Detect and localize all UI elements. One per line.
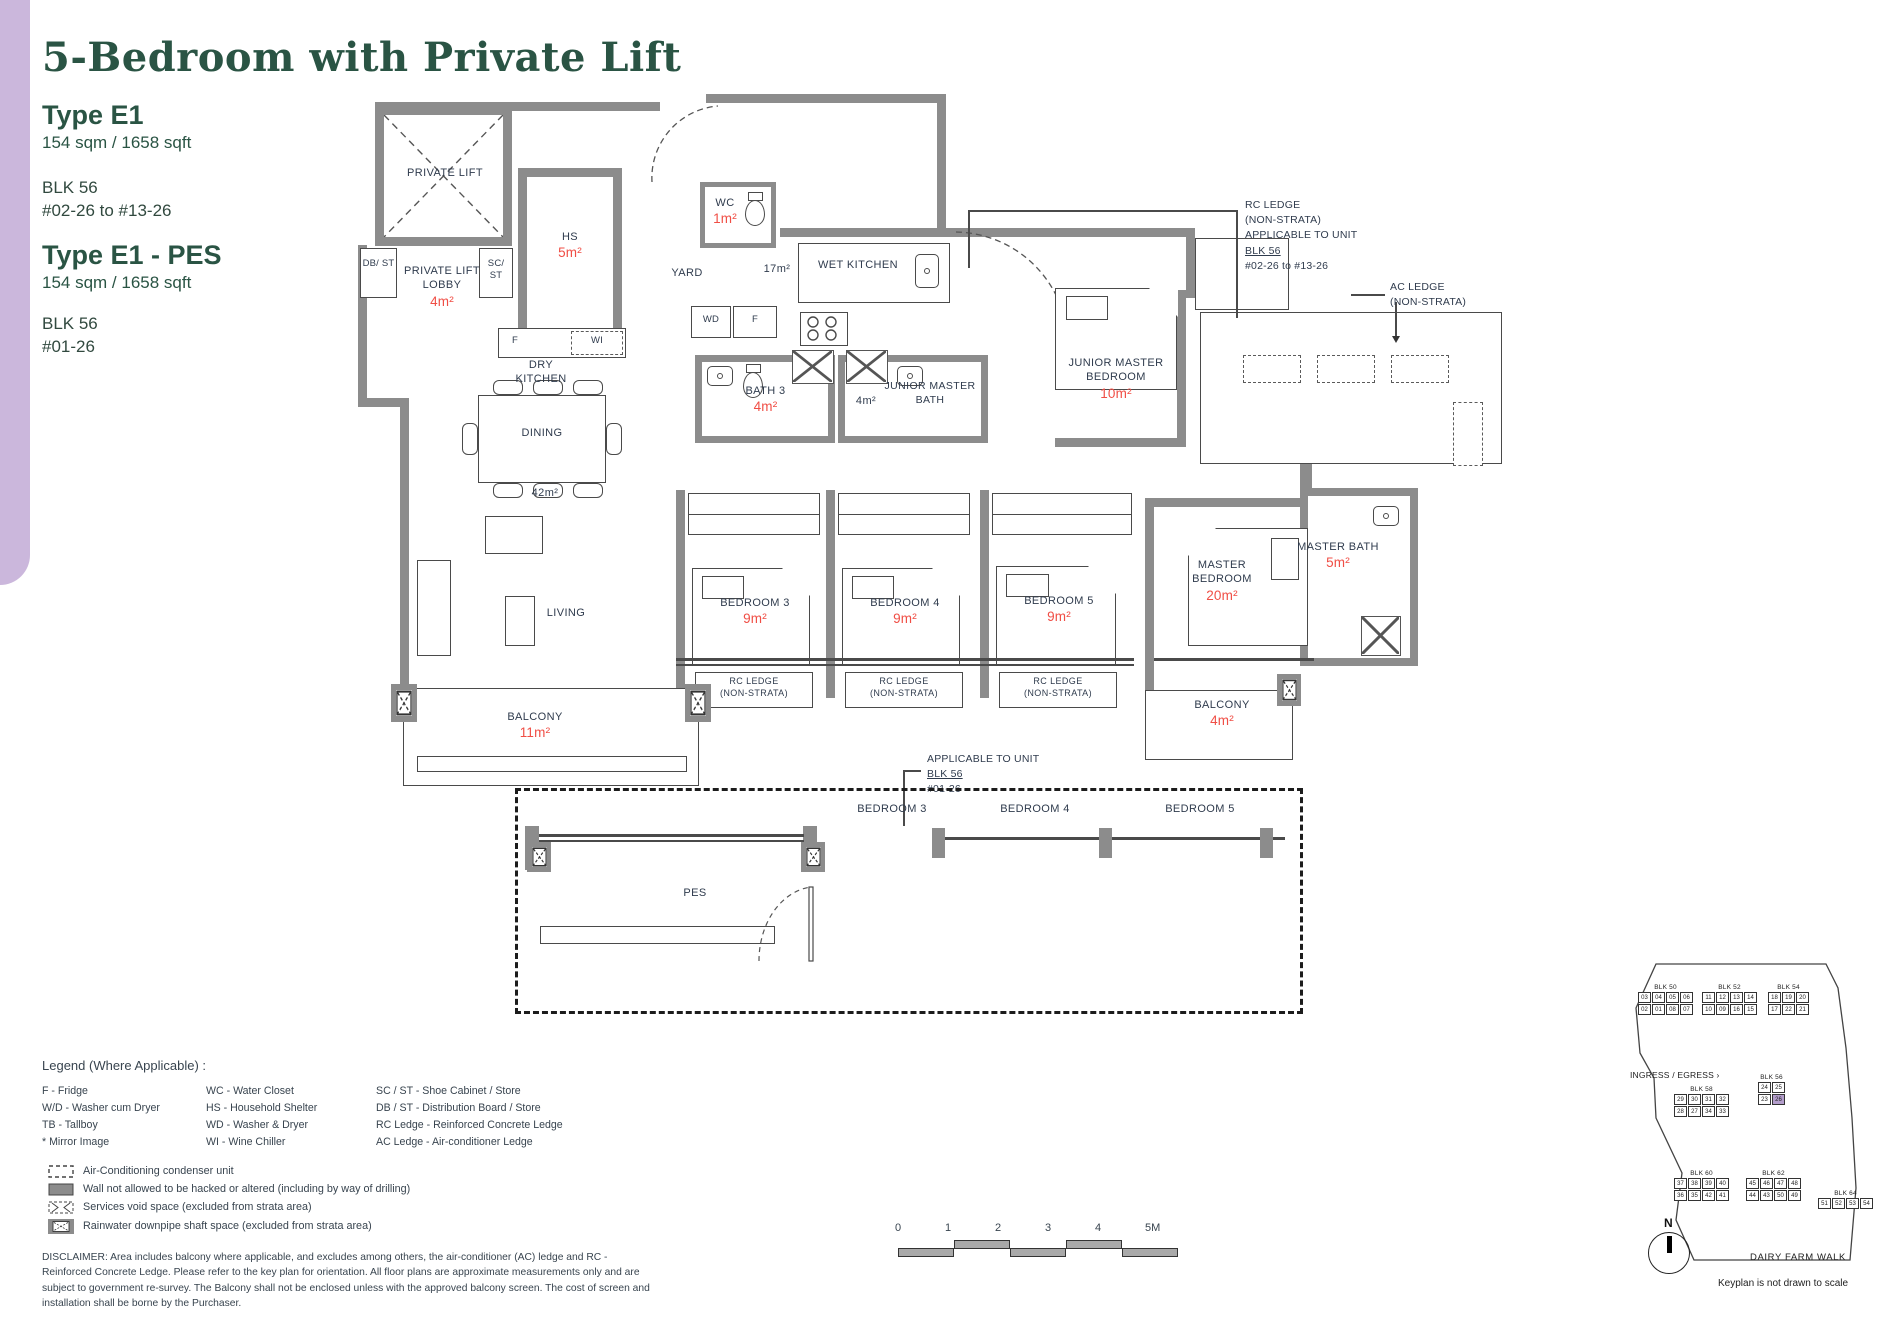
- services-void-icon: [846, 350, 888, 384]
- sink-icon: [915, 254, 939, 288]
- legend-sym-rainwater: Rainwater downpipe shaft space (excluded…: [48, 1219, 702, 1234]
- ac-condenser-icon: [1453, 402, 1483, 466]
- wc-label: WC1m²: [685, 196, 765, 228]
- keyplan-unit: 39: [1702, 1178, 1715, 1189]
- wall-segment: [400, 398, 409, 700]
- keyplan-unit: 47: [1774, 1178, 1787, 1189]
- legend-col2: WC - Water ClosetHS - Household ShelterW…: [206, 1083, 362, 1151]
- keyplan-block-blk62: BLK 62 45464748 44435049: [1746, 1170, 1801, 1202]
- keyplan-unit: 40: [1716, 1178, 1729, 1189]
- wall-segment: [1055, 438, 1186, 447]
- dining-area-label: 42m²: [517, 486, 573, 500]
- ac-condenser-icon: [1317, 355, 1375, 383]
- keyplan-unit: 22: [1782, 1004, 1795, 1015]
- keyplan-unit: 41: [1716, 1190, 1729, 1201]
- leader-line: [1236, 210, 1238, 318]
- keyplan-unit: 35: [1688, 1190, 1701, 1201]
- keyplan-unit: 49: [1788, 1190, 1801, 1201]
- fridge2-label: F: [733, 314, 777, 326]
- window-line: [539, 834, 804, 837]
- jm-bedroom-label: JUNIOR MASTER BEDROOM10m²: [1061, 356, 1171, 402]
- ac-condenser-icon: [1243, 355, 1301, 383]
- keyplan-block-blk58: BLK 58 29303132 28273433: [1674, 1086, 1729, 1118]
- db-st-label: DB/ ST: [362, 258, 395, 270]
- scale-segment: [898, 1248, 954, 1257]
- leader-line: [968, 210, 1238, 212]
- legend-sym-wall: Wall not allowed to be hacked or altered…: [48, 1183, 702, 1196]
- keyplan-block-blk52: BLK 52 11121314 10091615: [1702, 984, 1757, 1016]
- rc-ledge-label: RC LEDGE(NON-STRATA): [999, 676, 1117, 699]
- wardrobe: [838, 493, 970, 535]
- keyplan-unit: 26: [1772, 1094, 1785, 1105]
- dining-label: DINING: [478, 426, 606, 440]
- pes-planter: [540, 926, 775, 944]
- scale-ticks: 012345M: [895, 1222, 1195, 1234]
- sink-icon: [1373, 506, 1399, 526]
- rainwater-downpipe-icon: [391, 684, 417, 722]
- rc-ledge-label: RC LEDGE(NON-STRATA): [695, 676, 813, 699]
- wine-chiller-label: WI: [577, 335, 617, 347]
- sofa: [417, 560, 451, 656]
- wardrobe: [992, 493, 1132, 535]
- hs-label: HS5m²: [518, 230, 622, 262]
- private-lift-label: PRIVATE LIFT: [395, 166, 495, 180]
- bedroom4-label: BEDROOM 49m²: [839, 596, 971, 628]
- balcony-label: BALCONY11m²: [455, 710, 615, 742]
- wet-kitchen-label: WET KITCHEN: [815, 258, 901, 272]
- leader-line: [1351, 294, 1385, 296]
- balcony2-label: BALCONY4m²: [1157, 698, 1287, 730]
- keyplan-unit: 06: [1680, 992, 1693, 1003]
- pes-bedroom4-label: BEDROOM 4: [975, 802, 1095, 816]
- keyplan-unit: 46: [1760, 1178, 1773, 1189]
- type2-units: #01-26: [42, 337, 95, 357]
- keyplan-unit: 04: [1652, 992, 1665, 1003]
- keyplan-block-blk56: BLK 56 2425 2326: [1758, 1074, 1785, 1106]
- keyplan-block-blk60: BLK 60 37383940 36354241: [1674, 1170, 1729, 1202]
- type2-blk: BLK 56: [42, 314, 98, 334]
- scale-segment: [954, 1240, 1010, 1249]
- db-st-box: [360, 248, 397, 298]
- dry-kitchen-label: DRY KITCHEN: [503, 358, 579, 387]
- keyplan-unit: 21: [1796, 1004, 1809, 1015]
- wall-segment: [1260, 828, 1273, 858]
- bedroom5-label: BEDROOM 59m²: [993, 594, 1125, 626]
- keyplan-block-blk50: BLK 50 03040506 02010807: [1638, 984, 1693, 1016]
- yard-area-label: 17m²: [745, 262, 809, 276]
- keyplan: BLK 50 03040506 02010807 BLK 52 11121314…: [1628, 958, 1888, 1318]
- keyplan-unit: 53: [1846, 1198, 1859, 1209]
- keyplan-unit: 37: [1674, 1178, 1687, 1189]
- wardrobe: [688, 493, 820, 535]
- scale-segment: [1010, 1248, 1066, 1257]
- keyplan-unit: 16: [1730, 1004, 1743, 1015]
- rc-ledge-note: RC LEDGE(NON-STRATA) APPLICABLE TO UNITB…: [1245, 198, 1405, 274]
- keyplan-unit: 10: [1702, 1004, 1715, 1015]
- rc-ledge-label: RC LEDGE(NON-STRATA): [845, 676, 963, 699]
- keyplan-unit: 18: [1768, 992, 1781, 1003]
- legend-sym-ac: Air-Conditioning condenser unit: [48, 1165, 702, 1178]
- floorplan-page: 5-Bedroom with Private Lift Type E1 154 …: [0, 0, 1888, 1320]
- keyplan-unit: 12: [1716, 992, 1729, 1003]
- keyplan-unit: 23: [1758, 1094, 1771, 1105]
- pes-bedroom5-label: BEDROOM 5: [1140, 802, 1260, 816]
- keyplan-unit: 28: [1674, 1106, 1687, 1117]
- window-line: [676, 658, 1134, 661]
- coffee-table: [505, 596, 535, 646]
- scale-bar: 012345M: [895, 1222, 1195, 1268]
- wall-segment: [932, 828, 945, 858]
- keyplan-ingress-label: INGRESS / EGRESS ›: [1630, 1070, 1720, 1081]
- keyplan-unit: 13: [1730, 992, 1743, 1003]
- ac-condenser-icon: [1391, 355, 1449, 383]
- window-line: [676, 664, 1134, 666]
- pes-door-arc-icon: [755, 883, 817, 965]
- keyplan-block-blk54: BLK 54 181920 172221: [1768, 984, 1809, 1016]
- wall-segment: [676, 490, 685, 698]
- keyplan-unit: 20: [1796, 992, 1809, 1003]
- entry-door-arc-icon: [648, 100, 722, 186]
- chair-icon: [606, 423, 622, 455]
- chair-icon: [573, 483, 603, 498]
- keyplan-unit: 01: [1652, 1004, 1665, 1015]
- ac-ledge-note: AC LEDGE(NON-STRATA): [1390, 280, 1500, 310]
- keyplan-unit: 08: [1666, 1004, 1679, 1015]
- wall-segment: [980, 490, 989, 698]
- window-line: [539, 840, 804, 842]
- balcony-planter: [417, 756, 687, 772]
- keyplan-unit: 33: [1716, 1106, 1729, 1117]
- type1-blk: BLK 56: [42, 178, 98, 198]
- keyplan-unit: 27: [1688, 1106, 1701, 1117]
- north-needle-icon: [1667, 1236, 1672, 1253]
- jm-bath-label: JUNIOR MASTER BATH: [880, 380, 980, 407]
- master-bath-label: MASTER BATH5m²: [1290, 540, 1386, 572]
- lavender-side-bar: [0, 0, 30, 585]
- keyplan-unit: 09: [1716, 1004, 1729, 1015]
- rainwater-downpipe-icon: [685, 684, 711, 722]
- window-line: [1154, 658, 1314, 661]
- keyplan-unit: 07: [1680, 1004, 1693, 1015]
- keyplan-unit: 44: [1746, 1190, 1759, 1201]
- floor-plan: RC LEDGE(NON-STRATA) RC LEDGE(NON-STRATA…: [355, 88, 1550, 1033]
- keyplan-unit: 48: [1788, 1178, 1801, 1189]
- keyplan-unit: 14: [1744, 992, 1757, 1003]
- legend-sym-void: Services void space (excluded from strat…: [48, 1201, 702, 1214]
- keyplan-unit: 54: [1860, 1198, 1873, 1209]
- keyplan-road-label: DAIRY FARM WALK: [1718, 1252, 1878, 1263]
- keyplan-unit: 17: [1768, 1004, 1781, 1015]
- hob-icon: [800, 312, 848, 346]
- type1-name: Type E1: [42, 100, 144, 131]
- wall-segment: [1177, 290, 1186, 447]
- keyplan-unit: 42: [1702, 1190, 1715, 1201]
- rainwater-downpipe-icon: [801, 842, 825, 872]
- sink-icon: [707, 366, 733, 386]
- fridge-label: F: [503, 335, 527, 347]
- living-label: LIVING: [523, 606, 609, 620]
- keyplan-unit: 29: [1674, 1094, 1687, 1105]
- keyplan-unit: 51: [1818, 1198, 1831, 1209]
- leader-line: [968, 210, 970, 268]
- wd-label: WD: [691, 314, 731, 326]
- lobby-label: PRIVATE LIFT LOBBY4m²: [403, 264, 481, 310]
- rainwater-downpipe-icon: [527, 842, 551, 872]
- keyplan-unit: 11: [1702, 992, 1715, 1003]
- keyplan-unit: 38: [1688, 1178, 1701, 1189]
- keyplan-unit: 36: [1674, 1190, 1687, 1201]
- services-void-icon: [792, 350, 834, 384]
- bath3-label: BATH 34m²: [703, 384, 828, 416]
- wall-segment: [1145, 498, 1313, 507]
- arrow-icon: [1392, 336, 1400, 343]
- keyplan-block-blk64: BLK 64 51525354: [1818, 1190, 1873, 1210]
- wall-segment: [937, 94, 946, 237]
- scale-segment: [1066, 1240, 1122, 1249]
- legend: Legend (Where Applicable) : F - FridgeW/…: [42, 1058, 702, 1312]
- wall-segment: [1099, 828, 1112, 858]
- keyplan-unit: 52: [1832, 1198, 1845, 1209]
- wall-segment: [1186, 228, 1195, 298]
- keyplan-unit: 03: [1638, 992, 1651, 1003]
- pes-boundary: [515, 788, 1303, 1014]
- wall-segment: [1145, 498, 1154, 698]
- wall-segment: [826, 490, 835, 698]
- disclaimer: DISCLAIMER: Area includes balcony where …: [42, 1250, 657, 1312]
- type1-area: 154 sqm / 1658 sqft: [42, 133, 191, 153]
- window-line: [940, 837, 1285, 840]
- type2-name: Type E1 - PES: [42, 240, 222, 271]
- keyplan-unit: 30: [1688, 1094, 1701, 1105]
- sc-st-label: SC/ ST: [481, 258, 511, 283]
- pes-label: PES: [655, 886, 735, 900]
- keyplan-unit: 50: [1774, 1190, 1787, 1201]
- keyplan-unit: 32: [1716, 1094, 1729, 1105]
- scale-segment: [1122, 1248, 1178, 1257]
- chair-icon: [462, 423, 478, 455]
- legend-col1: F - FridgeW/D - Washer cum DryerTB - Tal…: [42, 1083, 192, 1151]
- keyplan-unit: 02: [1638, 1004, 1651, 1015]
- wall-legend-icon: [48, 1183, 74, 1196]
- keyplan-unit: 15: [1744, 1004, 1757, 1015]
- services-void-legend-icon: [48, 1201, 74, 1214]
- keyplan-note: Keyplan is not drawn to scale: [1718, 1278, 1888, 1289]
- type1-units: #02-26 to #13-26: [42, 201, 172, 221]
- legend-col3: SC / ST - Shoe Cabinet / StoreDB / ST - …: [376, 1083, 616, 1151]
- tv-console: [485, 516, 543, 554]
- shower-icon: [1361, 616, 1401, 656]
- keyplan-unit: 05: [1666, 992, 1679, 1003]
- pes-bedroom3-label: BEDROOM 3: [832, 802, 952, 816]
- type2-area: 154 sqm / 1658 sqft: [42, 273, 191, 293]
- rainwater-legend-icon: [48, 1219, 74, 1234]
- keyplan-unit: 24: [1758, 1082, 1771, 1093]
- keyplan-unit: 43: [1760, 1190, 1773, 1201]
- keyplan-unit: 45: [1746, 1178, 1759, 1189]
- legend-title: Legend (Where Applicable) :: [42, 1058, 702, 1073]
- keyplan-unit: 34: [1702, 1106, 1715, 1117]
- north-label: N: [1664, 1216, 1673, 1230]
- yard-label: YARD: [655, 266, 719, 280]
- keyplan-unit: 25: [1772, 1082, 1785, 1093]
- page-title: 5-Bedroom with Private Lift: [42, 34, 681, 81]
- ac-condenser-legend-icon: [48, 1165, 74, 1178]
- leader-line: [903, 770, 921, 772]
- keyplan-unit: 19: [1782, 992, 1795, 1003]
- bedroom3-label: BEDROOM 39m²: [689, 596, 821, 628]
- wall-segment: [706, 94, 946, 103]
- master-bedroom-label: MASTER BEDROOM20m²: [1167, 558, 1277, 604]
- keyplan-unit: 31: [1702, 1094, 1715, 1105]
